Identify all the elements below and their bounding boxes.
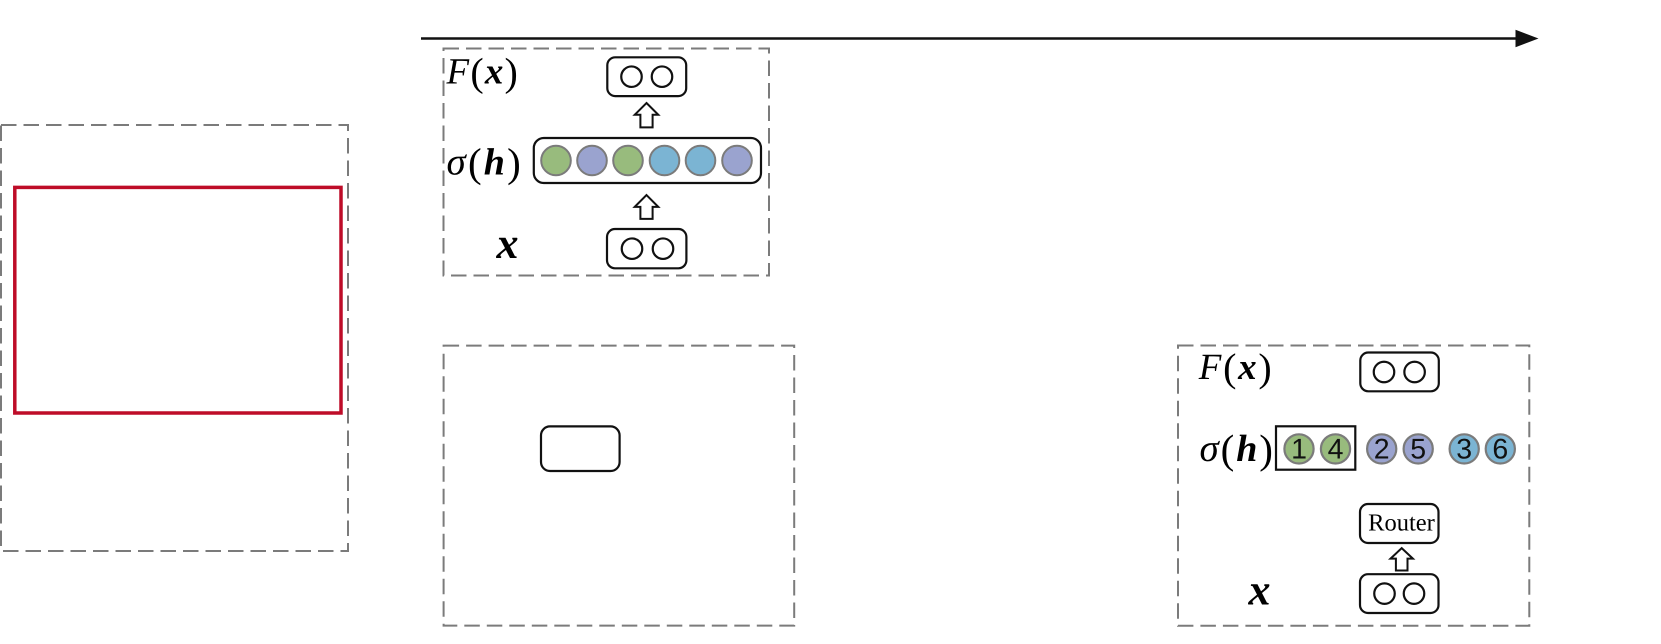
svg-text:3: 3 — [1456, 434, 1472, 466]
svg-text:Router: Router — [1368, 510, 1435, 537]
svg-text:5: 5 — [1410, 434, 1426, 466]
svg-text:F(x): F(x) — [1198, 345, 1274, 390]
svg-text:2: 2 — [1374, 434, 1390, 466]
svg-text:4: 4 — [1328, 434, 1344, 466]
svg-text:1: 1 — [1291, 434, 1307, 466]
svg-text:σ(h): σ(h) — [1200, 426, 1275, 472]
svg-text:F(x): F(x) — [446, 50, 520, 95]
svg-text:6: 6 — [1492, 434, 1508, 466]
svg-text:x: x — [496, 219, 519, 268]
svg-text:x: x — [1248, 566, 1271, 615]
svg-text:σ(h): σ(h) — [447, 139, 524, 185]
